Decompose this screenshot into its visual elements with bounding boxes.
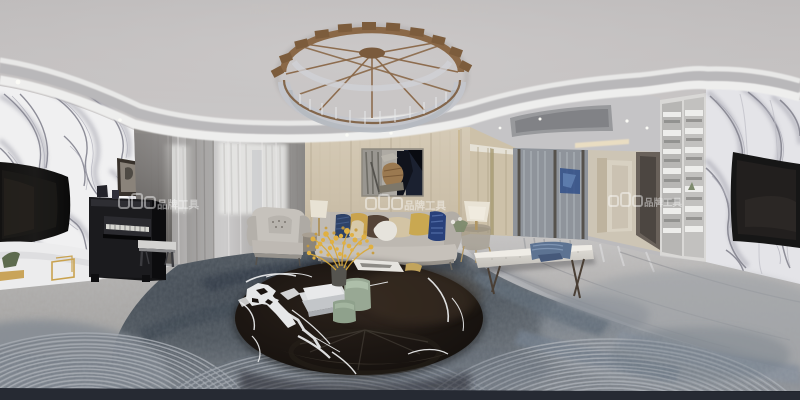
- svg-text:品牌工具设计: 品牌工具设计: [430, 3, 490, 16]
- svg-text:品牌工具设计: 品牌工具设计: [250, 3, 310, 16]
- svg-text:品牌工具: 品牌工具: [157, 198, 199, 211]
- svg-text:品牌工具: 品牌工具: [404, 199, 446, 212]
- svg-text:品牌工具: 品牌工具: [644, 197, 683, 209]
